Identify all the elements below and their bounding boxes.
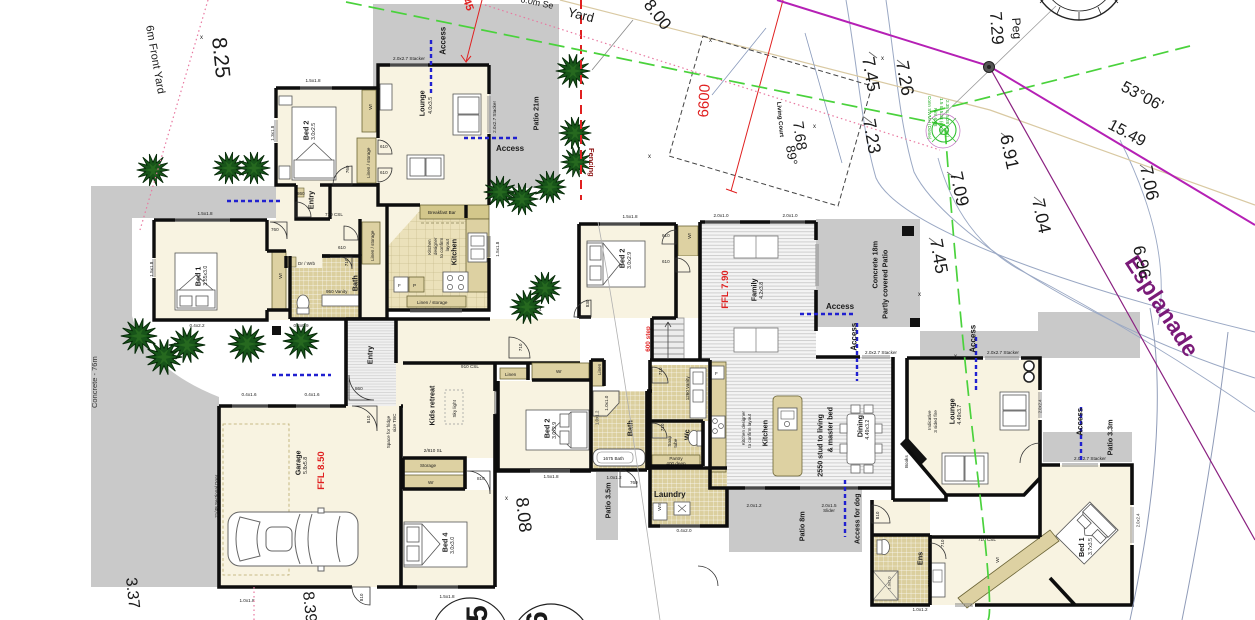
svg-text:830: 830 bbox=[585, 299, 590, 307]
svg-text:610: 610 bbox=[380, 144, 388, 149]
svg-text:1.5x1.8: 1.5x1.8 bbox=[305, 78, 321, 83]
svg-text:1.5x1.8: 1.5x1.8 bbox=[197, 211, 213, 216]
svg-text:Patio 3.5m: Patio 3.5m bbox=[604, 482, 613, 518]
svg-text:Access for dog: Access for dog bbox=[854, 493, 861, 544]
svg-text:Bed 4: Bed 4 bbox=[441, 533, 450, 553]
svg-text:designer: designer bbox=[433, 237, 438, 255]
svg-text:910 CSL: 910 CSL bbox=[461, 364, 479, 369]
svg-text:3 sided fire: 3 sided fire bbox=[933, 410, 938, 433]
svg-text:FFL 7.90: FFL 7.90 bbox=[720, 270, 731, 308]
svg-text:F: F bbox=[715, 371, 718, 376]
svg-text:Soap: Soap bbox=[667, 435, 672, 446]
svg-text:Space for fridge: Space for fridge bbox=[386, 415, 391, 448]
svg-text:610: 610 bbox=[662, 233, 670, 238]
svg-text:2.0x1.0: 2.0x1.0 bbox=[713, 213, 729, 218]
svg-text:860: 860 bbox=[297, 191, 305, 196]
svg-text:Patio 21m: Patio 21m bbox=[532, 96, 541, 130]
svg-text:Peg: Peg bbox=[1009, 17, 1024, 39]
svg-text:& master bed: & master bed bbox=[826, 407, 835, 453]
svg-text:4.49x3.2: 4.49x3.2 bbox=[865, 420, 871, 440]
svg-text:3.0x3.0: 3.0x3.0 bbox=[450, 537, 456, 554]
svg-text:3.0x2.9: 3.0x2.9 bbox=[552, 422, 558, 439]
svg-text:710: 710 bbox=[658, 367, 663, 375]
svg-text:610: 610 bbox=[380, 170, 388, 175]
svg-text:Wr: Wr bbox=[278, 273, 283, 279]
svg-text:0.4x1.6: 0.4x1.6 bbox=[304, 392, 320, 397]
svg-text:1675 Bath: 1675 Bath bbox=[603, 456, 624, 461]
svg-text:Access: Access bbox=[496, 144, 525, 153]
svg-text:Kids retreat: Kids retreat bbox=[428, 385, 437, 426]
svg-text:Breakfast Bar: Breakfast Bar bbox=[428, 210, 456, 215]
svg-text:size TBC: size TBC bbox=[392, 413, 397, 432]
svg-text:1.0x1.0: 1.0x1.0 bbox=[887, 576, 892, 590]
svg-text:FFL 8.50: FFL 8.50 bbox=[316, 451, 327, 489]
svg-text:0.4x1.6: 0.4x1.6 bbox=[241, 392, 257, 397]
svg-text:x: x bbox=[954, 354, 957, 360]
svg-text:8.39: 8.39 bbox=[299, 591, 319, 620]
svg-text:to confirm layout: to confirm layout bbox=[747, 413, 752, 447]
svg-text:Access: Access bbox=[1075, 407, 1084, 436]
svg-text:x: x bbox=[918, 292, 921, 298]
svg-text:610: 610 bbox=[338, 245, 346, 250]
svg-text:Dr / Wrb: Dr / Wrb bbox=[298, 261, 315, 266]
svg-text:1.5x1.8: 1.5x1.8 bbox=[543, 474, 559, 479]
svg-text:Indicative: Indicative bbox=[927, 410, 932, 430]
svg-text:Linen: Linen bbox=[505, 372, 517, 377]
svg-text:2.0x2.7 Stacker: 2.0x2.7 Stacker bbox=[492, 101, 497, 133]
svg-text:2.0x2.4: 2.0x2.4 bbox=[1038, 399, 1043, 413]
svg-text:0.4x2.2: 0.4x2.2 bbox=[189, 323, 205, 328]
svg-text:Patio 3.3m: Patio 3.3m bbox=[1106, 419, 1115, 455]
svg-text:610: 610 bbox=[662, 259, 670, 264]
svg-text:Entry: Entry bbox=[366, 346, 375, 364]
svg-text:1.0x1.2: 1.0x1.2 bbox=[606, 475, 622, 480]
svg-text:710: 710 bbox=[518, 343, 523, 351]
svg-text:4.2x3.8: 4.2x3.8 bbox=[759, 282, 765, 299]
svg-text:Bed 2: Bed 2 bbox=[618, 249, 627, 269]
svg-text:810: 810 bbox=[875, 511, 880, 519]
svg-text:760: 760 bbox=[345, 165, 350, 173]
svg-text:F: F bbox=[398, 283, 401, 288]
svg-text:Concrete - 76m: Concrete - 76m bbox=[90, 356, 99, 408]
svg-text:Entry: Entry bbox=[307, 191, 316, 209]
svg-text:3.37: 3.37 bbox=[122, 577, 142, 610]
svg-text:Lounge: Lounge bbox=[948, 398, 957, 424]
svg-text:3.0x2.5: 3.0x2.5 bbox=[311, 123, 317, 140]
svg-text:1.5x1.8: 1.5x1.8 bbox=[495, 241, 500, 257]
svg-text:2.0x2.7 Stacker: 2.0x2.7 Stacker bbox=[1074, 456, 1106, 461]
svg-text:Concrete 18m: Concrete 18m bbox=[871, 241, 880, 289]
svg-text:Kitchen: Kitchen bbox=[761, 420, 770, 446]
svg-text:x: x bbox=[709, 38, 712, 44]
svg-text:710 CSL: 710 CSL bbox=[978, 537, 996, 542]
svg-text:Storage: Storage bbox=[420, 463, 437, 468]
svg-text:6: 6 bbox=[521, 611, 554, 620]
svg-text:Conn SWMH (Dome): Conn SWMH (Dome) bbox=[927, 96, 932, 140]
svg-text:2.35 IL 5.28 (east): 2.35 IL 5.28 (east) bbox=[945, 100, 950, 138]
svg-text:2.0x1.0: 2.0x1.0 bbox=[782, 213, 798, 218]
svg-text:Books: Books bbox=[904, 455, 909, 468]
svg-text:layout: layout bbox=[445, 238, 450, 251]
svg-text:Access: Access bbox=[849, 322, 858, 351]
svg-text:Kitchen: Kitchen bbox=[427, 239, 432, 255]
svg-text:810: 810 bbox=[359, 593, 364, 601]
svg-text:1.5x1.8: 1.5x1.8 bbox=[622, 214, 638, 219]
svg-text:0.4x0.9: 0.4x0.9 bbox=[293, 323, 309, 328]
svg-text:Bed 1: Bed 1 bbox=[194, 267, 203, 287]
svg-text:8.08: 8.08 bbox=[512, 496, 536, 533]
svg-text:1.5x1.8: 1.5x1.8 bbox=[149, 261, 154, 277]
svg-text:tube: tube bbox=[673, 438, 678, 447]
svg-text:Access: Access bbox=[968, 324, 977, 353]
svg-text:Partly covered Patio: Partly covered Patio bbox=[881, 249, 890, 319]
svg-text:710: 710 bbox=[660, 423, 665, 431]
svg-text:860: 860 bbox=[355, 386, 363, 391]
svg-text:Ens: Ens bbox=[916, 552, 925, 565]
svg-text:Linen / storage: Linen / storage bbox=[417, 300, 448, 305]
svg-text:0.4x2.0: 0.4x2.0 bbox=[676, 528, 692, 533]
svg-text:710: 710 bbox=[344, 258, 349, 266]
svg-text:Kitchen: Kitchen bbox=[450, 239, 459, 265]
svg-text:710: 710 bbox=[940, 539, 945, 547]
svg-text:Wr: Wr bbox=[995, 557, 1000, 563]
svg-text:1.5 IL 5.38 (south): 1.5 IL 5.38 (south) bbox=[939, 98, 944, 136]
svg-text:Rim 6.98: Rim 6.98 bbox=[933, 108, 938, 127]
svg-text:3.7x3.5: 3.7x3.5 bbox=[1088, 538, 1094, 555]
svg-text:x: x bbox=[200, 35, 203, 41]
svg-text:4.49x3.7: 4.49x3.7 bbox=[957, 405, 963, 425]
svg-text:2.0x1.2: 2.0x1.2 bbox=[746, 503, 762, 508]
svg-text:8.25: 8.25 bbox=[207, 36, 234, 79]
svg-text:1260 Vanity: 1260 Vanity bbox=[685, 376, 690, 401]
svg-text:Wm: Wm bbox=[657, 502, 662, 510]
svg-text:Kitchen designer: Kitchen designer bbox=[741, 411, 746, 446]
svg-text:Dining: Dining bbox=[856, 415, 865, 437]
svg-text:Linen: Linen bbox=[597, 363, 602, 375]
svg-text:Fencing: Fencing bbox=[587, 148, 596, 177]
svg-text:760: 760 bbox=[630, 480, 638, 485]
svg-text:1.0x1.2: 1.0x1.2 bbox=[595, 410, 600, 425]
svg-text:5: 5 bbox=[461, 605, 494, 620]
svg-text:Bed 2: Bed 2 bbox=[302, 121, 311, 141]
svg-text:1.3x1.8: 1.3x1.8 bbox=[270, 125, 275, 141]
svg-text:Lounge: Lounge bbox=[418, 90, 427, 116]
svg-text:950 Vanity: 950 Vanity bbox=[326, 289, 348, 294]
svg-text:1.0x1.8: 1.0x1.8 bbox=[239, 598, 255, 603]
svg-text:Patio 8m: Patio 8m bbox=[798, 511, 807, 541]
svg-text:Bed 1: Bed 1 bbox=[1077, 537, 1086, 557]
svg-text:x: x bbox=[813, 124, 816, 130]
svg-text:2/810 SL: 2/810 SL bbox=[424, 448, 443, 453]
svg-text:810: 810 bbox=[477, 476, 485, 481]
svg-text:6600: 6600 bbox=[695, 84, 714, 118]
svg-text:2.0x2.7 Stacker: 2.0x2.7 Stacker bbox=[393, 56, 425, 61]
svg-text:Garage: Garage bbox=[294, 451, 303, 476]
svg-text:P: P bbox=[413, 283, 416, 288]
svg-text:Linen / storage: Linen / storage bbox=[370, 230, 375, 261]
svg-text:Bath: Bath bbox=[626, 420, 635, 436]
svg-text:x: x bbox=[648, 154, 651, 160]
svg-text:x: x bbox=[505, 496, 508, 502]
svg-text:Wr: Wr bbox=[368, 104, 373, 110]
svg-text:Wr: Wr bbox=[428, 480, 434, 485]
svg-text:Access: Access bbox=[438, 26, 447, 55]
svg-text:Family: Family bbox=[750, 279, 759, 302]
svg-text:3.55x3.0: 3.55x3.0 bbox=[203, 266, 209, 286]
svg-text:5.8x5.8: 5.8x5.8 bbox=[303, 457, 309, 474]
svg-text:Linen / storage: Linen / storage bbox=[366, 147, 371, 178]
svg-text:2.0x2.4: 2.0x2.4 bbox=[1136, 513, 1141, 527]
svg-text:1.0x1.0: 1.0x1.0 bbox=[604, 395, 609, 411]
svg-text:Sky light: Sky light bbox=[452, 399, 457, 417]
svg-text:Bath: Bath bbox=[351, 275, 360, 291]
svg-text:1.0x1.2: 1.0x1.2 bbox=[912, 607, 928, 612]
svg-text:710 CSL: 710 CSL bbox=[325, 212, 343, 217]
svg-text:760: 760 bbox=[271, 227, 279, 232]
svg-text:Slider: Slider bbox=[823, 508, 835, 513]
svg-text:1.5x1.8: 1.5x1.8 bbox=[439, 594, 455, 599]
svg-text:810: 810 bbox=[366, 415, 371, 423]
svg-text:7.29: 7.29 bbox=[986, 11, 1007, 45]
svg-text:to confirm: to confirm bbox=[439, 238, 444, 258]
svg-text:Wr: Wr bbox=[687, 233, 692, 239]
svg-text:3.0x2.9: 3.0x2.9 bbox=[627, 252, 633, 269]
svg-text:Bed 2: Bed 2 bbox=[543, 419, 552, 439]
svg-text:Laundry: Laundry bbox=[654, 490, 686, 499]
svg-text:Wr: Wr bbox=[556, 369, 562, 374]
svg-text:x: x bbox=[881, 56, 884, 62]
svg-text:2.0x2.7 Stacker: 2.0x2.7 Stacker bbox=[987, 350, 1019, 355]
svg-text:4.0x3.5: 4.0x3.5 bbox=[428, 97, 434, 114]
svg-text:Access: Access bbox=[826, 302, 855, 311]
svg-text:2.0x2.7 Stacker: 2.0x2.7 Stacker bbox=[865, 350, 897, 355]
svg-text:2550 stud to living: 2550 stud to living bbox=[816, 414, 825, 477]
svg-text:89°: 89° bbox=[783, 144, 801, 166]
